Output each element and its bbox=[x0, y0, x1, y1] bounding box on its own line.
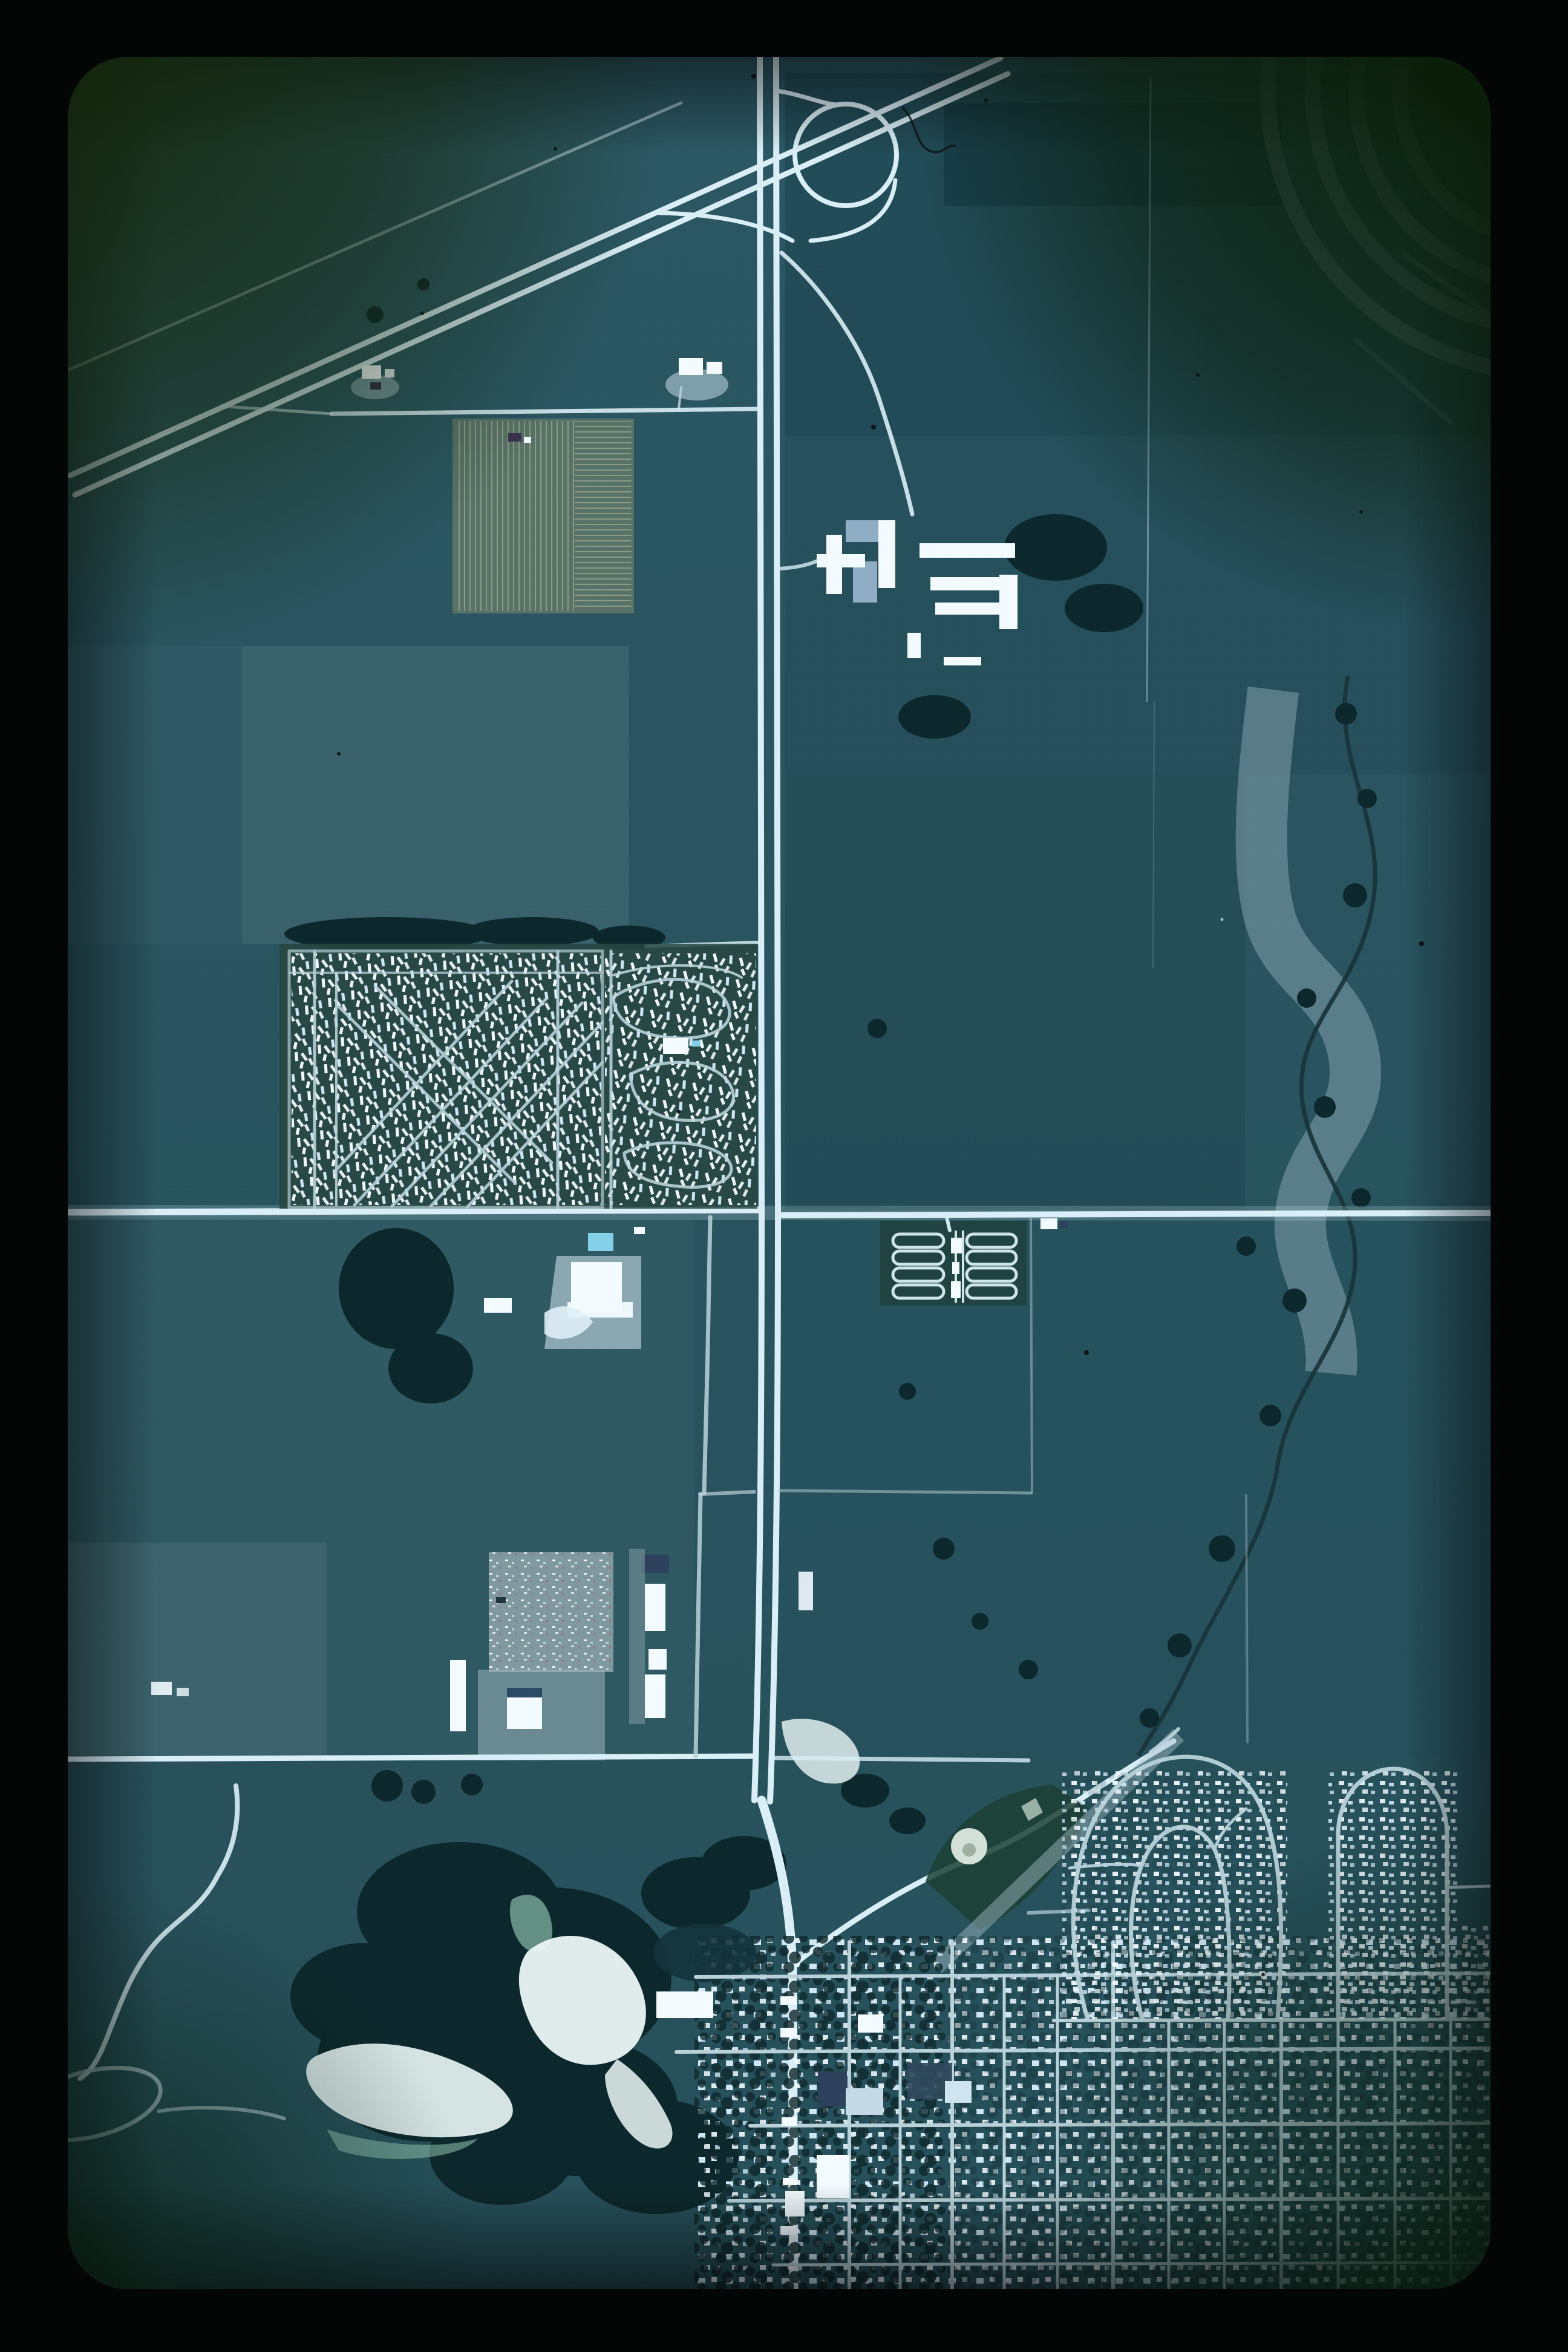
film-grain bbox=[68, 57, 1491, 2289]
photo bbox=[13, 0, 1568, 2289]
aerial-photo: Vertical color aerial photograph slide: … bbox=[0, 0, 1568, 2352]
slide-photo: Vertical color aerial photograph slide: … bbox=[0, 0, 1568, 2352]
